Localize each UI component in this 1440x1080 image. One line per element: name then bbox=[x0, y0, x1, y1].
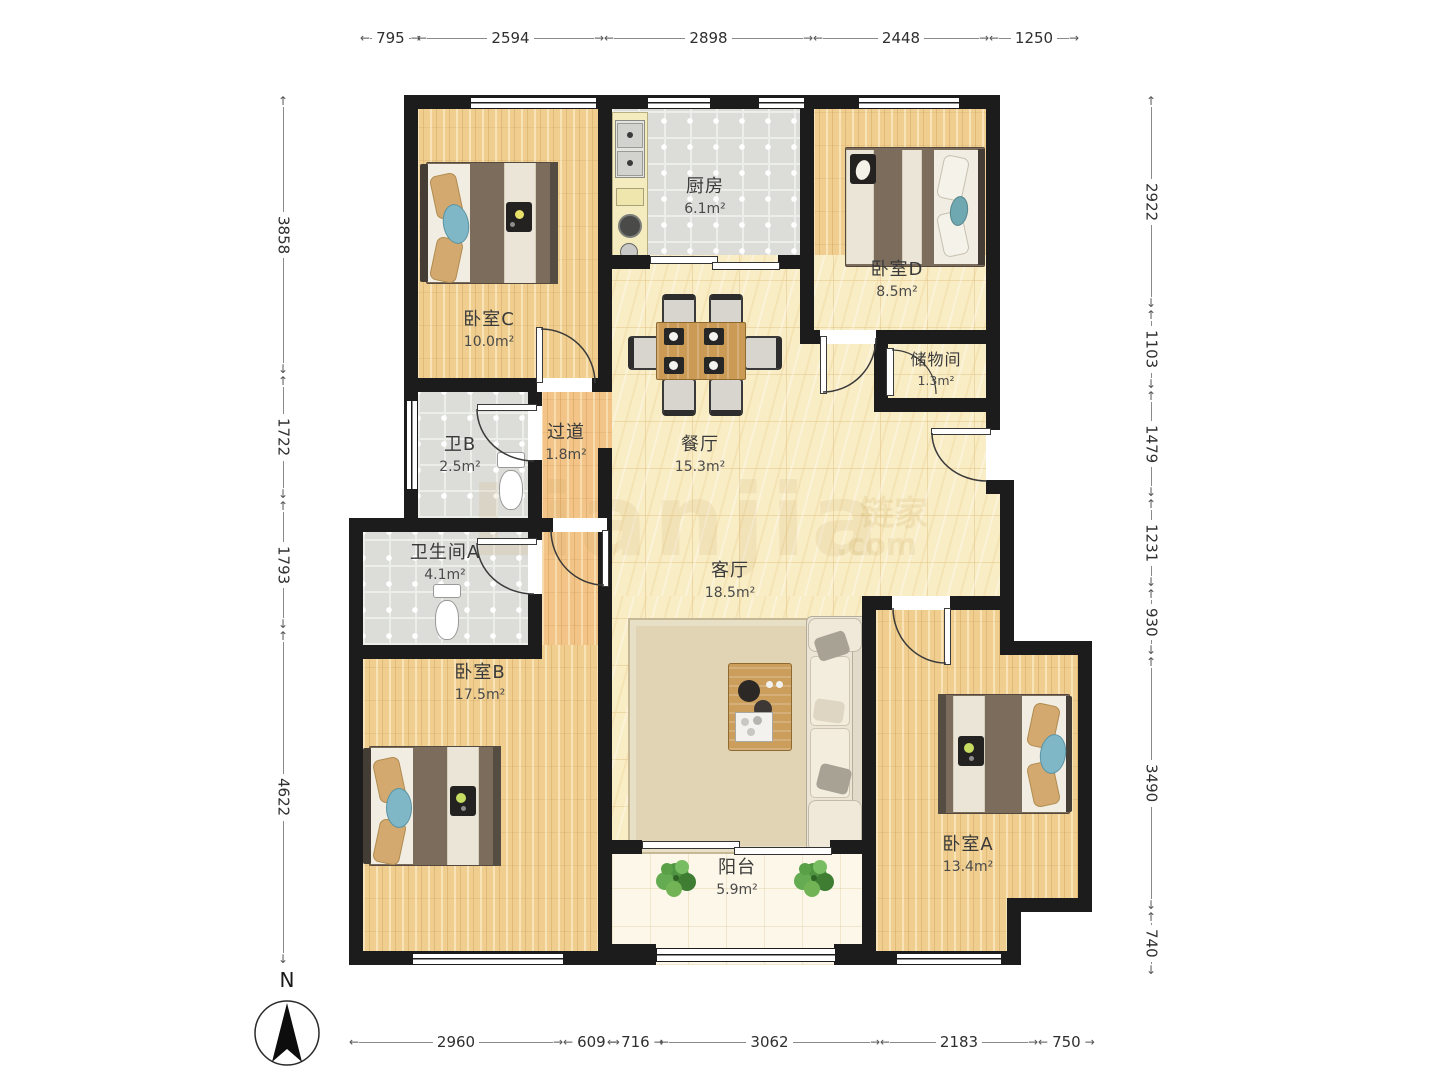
dim-arrow: ← bbox=[360, 32, 370, 44]
dim-arrow: → bbox=[803, 32, 813, 44]
dim-value: 3858 bbox=[276, 212, 291, 258]
dim-value: 1250 bbox=[1011, 31, 1057, 46]
dim-line bbox=[614, 38, 685, 39]
bed-edge bbox=[493, 746, 501, 866]
plate bbox=[669, 332, 678, 341]
dim-arrow: ↑ bbox=[1146, 390, 1156, 402]
room-label-storage: 储物间 1.3m² bbox=[910, 346, 961, 388]
dining-chair bbox=[709, 378, 743, 416]
room-label-kitchen: 厨房 6.1m² bbox=[684, 172, 726, 217]
dim-value: 930 bbox=[1144, 604, 1159, 641]
dim-value: 750 bbox=[1048, 1035, 1085, 1050]
room-label-bedroom-d: 卧室D 8.5m² bbox=[871, 255, 924, 300]
dim-value: 2448 bbox=[878, 31, 924, 46]
dimension-bottom: ←609→ bbox=[563, 1032, 607, 1052]
plant-icon bbox=[790, 854, 838, 902]
window bbox=[647, 97, 711, 109]
bed-edge bbox=[938, 694, 946, 814]
dim-arrow: → bbox=[1069, 32, 1079, 44]
dim-arrow: → bbox=[979, 32, 989, 44]
dimension-bottom: ←3062→ bbox=[659, 1032, 880, 1052]
dim-value: 1479 bbox=[1144, 421, 1159, 467]
dim-value: 740 bbox=[1144, 925, 1159, 962]
dim-arrow: ← bbox=[417, 32, 427, 44]
window bbox=[412, 953, 564, 965]
dimension-bottom: ←716→ bbox=[607, 1032, 659, 1052]
bed-headboard bbox=[977, 149, 985, 265]
coffee-table-cup bbox=[776, 681, 783, 688]
balcony-sliding-door bbox=[642, 841, 740, 849]
dim-value: 716 bbox=[617, 1035, 654, 1050]
plate bbox=[669, 361, 678, 370]
door-arc bbox=[477, 409, 534, 461]
bed-throw bbox=[386, 788, 412, 828]
kitchen-sliding-door bbox=[712, 262, 780, 270]
wall-segment bbox=[528, 460, 542, 518]
wall-segment bbox=[986, 95, 1000, 430]
dimension-right: ↑1231↓ bbox=[1140, 498, 1162, 588]
kitchen-sink bbox=[618, 214, 642, 238]
dim-value: 609 bbox=[573, 1035, 610, 1050]
candle bbox=[456, 793, 466, 803]
dim-value: 2594 bbox=[487, 31, 533, 46]
wall-segment bbox=[528, 594, 542, 645]
wall-segment bbox=[830, 840, 876, 854]
tray-cup bbox=[741, 718, 749, 726]
dim-arrow: → bbox=[1028, 1036, 1038, 1048]
dim-line bbox=[283, 821, 284, 953]
dim-value: 4622 bbox=[276, 774, 291, 820]
burner-knob bbox=[627, 160, 633, 166]
door-arc bbox=[823, 338, 876, 392]
dim-arrow: ↑ bbox=[1146, 656, 1156, 668]
plate bbox=[709, 332, 718, 341]
dim-line bbox=[283, 642, 284, 774]
dimension-bottom: ←2960→ bbox=[349, 1032, 563, 1052]
wall-segment bbox=[612, 255, 650, 269]
dim-line bbox=[999, 38, 1011, 39]
dim-line bbox=[427, 38, 487, 39]
dim-value: 1103 bbox=[1144, 326, 1159, 372]
dim-line bbox=[359, 1042, 433, 1043]
bed-headboard bbox=[420, 164, 428, 282]
window bbox=[406, 400, 418, 490]
dim-line bbox=[890, 1042, 936, 1043]
door-arc bbox=[541, 329, 595, 383]
wall-segment bbox=[950, 596, 1000, 610]
dim-arrow: → bbox=[553, 1036, 563, 1048]
sofa-pillow bbox=[813, 698, 846, 724]
dimension-right: ↑3490↓ bbox=[1140, 656, 1162, 911]
room-label-bedroom-a: 卧室A 13.4m² bbox=[942, 830, 993, 875]
dim-line bbox=[732, 38, 803, 39]
dim-arrow: ← bbox=[989, 32, 999, 44]
dim-value: 2183 bbox=[936, 1035, 982, 1050]
candle bbox=[969, 756, 974, 761]
door-arc bbox=[932, 433, 987, 481]
wall-segment bbox=[876, 330, 1000, 344]
room-label-bedroom-b: 卧室B 17.5m² bbox=[454, 658, 505, 703]
dim-line bbox=[1151, 402, 1152, 421]
wall-segment bbox=[598, 448, 612, 518]
dim-line bbox=[283, 461, 284, 488]
wall-segment bbox=[862, 596, 876, 840]
wall-segment bbox=[349, 518, 542, 532]
dimension-right: ↑930↓ bbox=[1140, 588, 1162, 656]
plate bbox=[709, 361, 718, 370]
door-arc bbox=[893, 608, 946, 663]
dim-line bbox=[669, 1042, 746, 1043]
wall-segment bbox=[1078, 641, 1092, 912]
dim-arrow: ↓ bbox=[278, 953, 288, 965]
window bbox=[858, 97, 960, 109]
dim-line bbox=[283, 258, 284, 363]
dimension-left: ↑4622↓ bbox=[272, 630, 294, 965]
dim-arrow: ↑ bbox=[278, 375, 288, 387]
dimension-bottom: ←2183→ bbox=[880, 1032, 1038, 1052]
dim-line bbox=[479, 1042, 553, 1043]
wall-segment bbox=[598, 95, 612, 392]
dim-arrow: ↑ bbox=[1146, 498, 1156, 510]
plant-icon bbox=[652, 854, 700, 902]
dim-line bbox=[793, 1042, 870, 1043]
dim-arrow: ← bbox=[813, 32, 823, 44]
wall-segment bbox=[874, 398, 1000, 412]
burner-knob bbox=[627, 132, 633, 138]
dim-line bbox=[1057, 38, 1069, 39]
dim-arrow: ← bbox=[607, 1036, 617, 1048]
dim-arrow: ↑ bbox=[1146, 309, 1156, 321]
dim-arrow: ↑ bbox=[1146, 911, 1156, 923]
entry-door-opening bbox=[986, 430, 1000, 480]
dim-arrow: ↑ bbox=[278, 95, 288, 107]
dim-arrow: ← bbox=[659, 1036, 669, 1048]
dim-arrow: ↑ bbox=[278, 500, 288, 512]
dim-line bbox=[823, 38, 878, 39]
dim-arrow: → bbox=[870, 1036, 880, 1048]
window bbox=[758, 97, 805, 109]
dim-line bbox=[1151, 225, 1152, 297]
candle bbox=[515, 210, 524, 219]
dim-value: 2922 bbox=[1144, 179, 1159, 225]
bed-runner bbox=[902, 150, 922, 264]
dimension-top: ←2448→ bbox=[813, 28, 989, 48]
dim-value: 795 bbox=[372, 31, 409, 46]
wall-segment bbox=[598, 840, 642, 854]
room-label-hallway: 过道 1.8m² bbox=[545, 418, 587, 463]
dimension-right: ↑1479↓ bbox=[1140, 390, 1162, 498]
balcony-window bbox=[656, 948, 836, 962]
dim-line bbox=[1151, 467, 1152, 486]
door-arc bbox=[477, 543, 534, 594]
dim-arrow: → bbox=[594, 32, 604, 44]
dim-arrow: ← bbox=[349, 1036, 359, 1048]
dimension-top: ←2898→ bbox=[604, 28, 813, 48]
coffee-table-vase bbox=[738, 680, 760, 702]
room-label-living: 客厅 18.5m² bbox=[705, 556, 755, 601]
dim-line bbox=[283, 387, 284, 414]
dim-value: 1793 bbox=[276, 542, 291, 588]
dim-line bbox=[534, 38, 594, 39]
wall-segment bbox=[862, 840, 876, 965]
bed-headboard bbox=[363, 748, 371, 864]
dimension-right: ↑2922↓ bbox=[1140, 95, 1162, 309]
kitchen-sliding-door bbox=[650, 256, 718, 264]
tray-cup bbox=[747, 728, 755, 736]
dim-line bbox=[283, 588, 284, 618]
dimension-left: ↑1722↓ bbox=[272, 375, 294, 500]
compass-north-label: N bbox=[252, 968, 322, 992]
dim-arrow: ↑ bbox=[1146, 588, 1156, 600]
room-label-balcony: 阳台 5.9m² bbox=[716, 853, 758, 898]
wall-segment bbox=[349, 645, 542, 659]
wall-segment bbox=[986, 480, 1014, 494]
candle bbox=[510, 222, 515, 227]
window bbox=[896, 953, 1002, 965]
dim-line bbox=[283, 512, 284, 542]
tray-cup bbox=[753, 716, 762, 725]
room-label-bath-a: 卫生间A 4.1m² bbox=[410, 538, 480, 583]
dim-line bbox=[1151, 510, 1152, 520]
dim-line bbox=[1151, 668, 1152, 760]
dim-arrow: ↑ bbox=[278, 630, 288, 642]
wall-segment bbox=[800, 95, 814, 344]
toilet-bowl-bath-b bbox=[499, 470, 523, 510]
toilet-tank-bath-a bbox=[433, 584, 461, 598]
toilet-bowl-bath-a bbox=[435, 600, 459, 640]
dimension-left: ↑3858↓ bbox=[272, 95, 294, 375]
coffee-table-cup bbox=[766, 681, 773, 688]
dimension-right: ↑740↓ bbox=[1140, 911, 1162, 965]
bed-edge bbox=[550, 162, 558, 284]
dim-arrow: ↓ bbox=[1146, 964, 1156, 976]
dim-value: 1231 bbox=[1144, 520, 1159, 566]
wall-segment bbox=[778, 255, 800, 269]
dim-value: 2960 bbox=[433, 1035, 479, 1050]
kitchen-appliance bbox=[616, 188, 644, 206]
room-label-bath-b: 卫B 2.5m² bbox=[439, 430, 481, 475]
dimension-top: ←2594→ bbox=[417, 28, 604, 48]
dim-arrow: ← bbox=[604, 32, 614, 44]
dim-value: 3490 bbox=[1144, 760, 1159, 806]
dining-chair bbox=[744, 336, 782, 370]
dimension-left: ↑1793↓ bbox=[272, 500, 294, 630]
window bbox=[470, 97, 597, 109]
candle bbox=[461, 806, 466, 811]
dim-arrow: → bbox=[1085, 1036, 1095, 1048]
door-arc bbox=[551, 530, 604, 585]
room-label-dining: 餐厅 15.3m² bbox=[675, 430, 725, 475]
dim-arrow: ← bbox=[563, 1036, 573, 1048]
candle bbox=[964, 743, 974, 753]
dim-line bbox=[924, 38, 979, 39]
dimension-right: ↑1103↓ bbox=[1140, 309, 1162, 390]
dimension-bottom: ←750→ bbox=[1038, 1032, 1092, 1052]
floor-plan-canvas: Lianjia 链家 .com bbox=[0, 0, 1440, 1080]
exterior-notch bbox=[1021, 912, 1092, 965]
dim-value: 3062 bbox=[746, 1035, 792, 1050]
dim-line bbox=[283, 107, 284, 212]
dim-arrow: ← bbox=[880, 1036, 890, 1048]
dim-line bbox=[982, 1042, 1028, 1043]
room-label-bedroom-c: 卧室C 10.0m² bbox=[463, 305, 515, 350]
wall-segment bbox=[349, 518, 363, 965]
dim-line bbox=[1151, 107, 1152, 179]
dimension-top: ←1250→ bbox=[989, 28, 1079, 48]
wall-segment bbox=[404, 378, 537, 392]
dining-chair bbox=[662, 378, 696, 416]
compass-icon bbox=[252, 996, 322, 1068]
dimension-top: ←795→ bbox=[360, 28, 417, 48]
dim-arrow: ← bbox=[1038, 1036, 1048, 1048]
dim-arrow: ↑ bbox=[1146, 95, 1156, 107]
dim-value: 1722 bbox=[276, 414, 291, 460]
dim-line bbox=[1151, 807, 1152, 899]
dim-value: 2898 bbox=[685, 31, 731, 46]
wall-segment bbox=[1000, 493, 1014, 655]
